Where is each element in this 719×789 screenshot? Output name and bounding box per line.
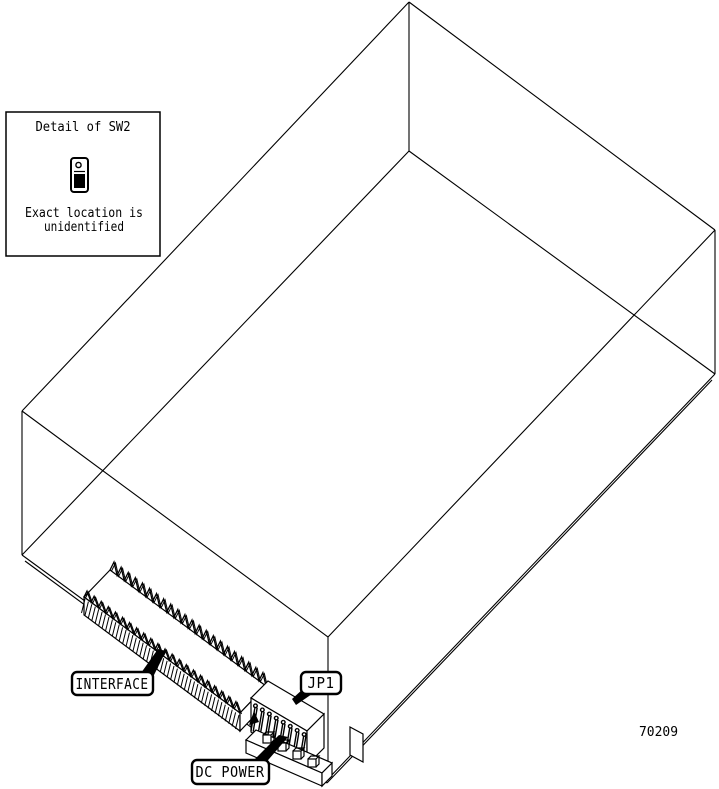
interface-label-text: INTERFACE xyxy=(76,675,149,693)
dc-power-label: DC POWER xyxy=(192,760,269,784)
jp1-label-text: JP1 xyxy=(308,674,335,692)
dip-switch-icon xyxy=(71,158,88,192)
interface-connector xyxy=(82,562,268,731)
part-number: 70209 xyxy=(639,725,678,740)
detail-box-title: Detail of SW2 xyxy=(36,120,131,135)
detail-box: Detail of SW2 Exact location is unidenti… xyxy=(6,112,160,256)
connector-location-diagram: INTERFACE JP1 DC POWER Detail of SW2 Exa… xyxy=(0,0,719,789)
detail-note-line1: Exact location is xyxy=(25,206,143,221)
detail-note-line2: unidentified xyxy=(44,220,124,235)
jp1-label: JP1 xyxy=(301,672,341,694)
chassis-bottom-rim xyxy=(22,374,715,783)
interface-label: INTERFACE xyxy=(72,672,153,695)
dc-power-label-text: DC POWER xyxy=(196,763,265,781)
diagram-canvas: INTERFACE JP1 DC POWER Detail of SW2 Exa… xyxy=(0,0,719,789)
